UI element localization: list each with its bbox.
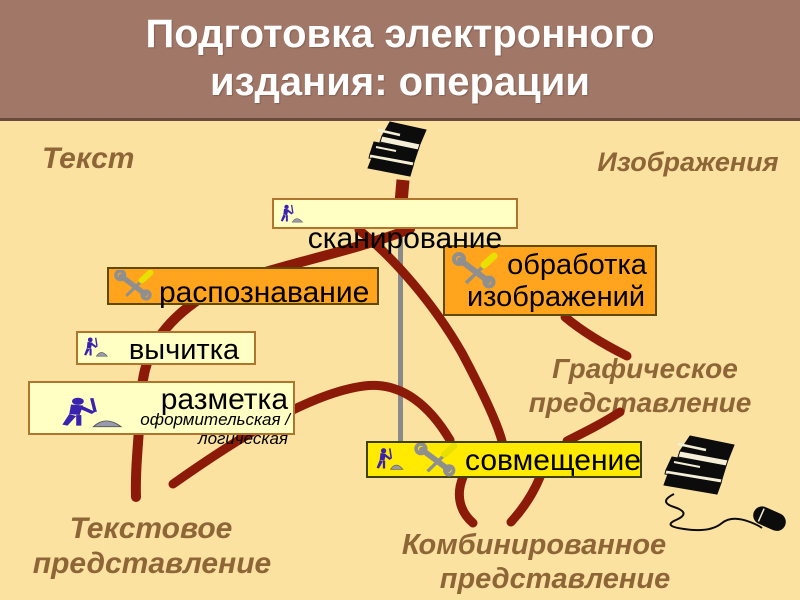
flow-curve-processing-to-graphic [565,317,627,356]
flow-curve-merge-down-right [511,477,540,522]
page-title-line2: издания: операции [0,59,800,105]
markup-sublabel-1: оформительская / [140,410,290,430]
crossed-tools-icon [410,443,462,477]
recognition-label: распознавание [159,276,369,310]
flow-curve-merge-down-left [459,477,473,523]
proofreading-label: вычитка [129,334,239,367]
worker-digging-icon [372,445,406,475]
page-title-line1: Подготовка электронного [0,11,800,57]
worker-digging-icon [277,201,305,228]
scanning-label: сканирование [308,222,502,256]
flow-curve-graphic-to-merge [567,412,620,441]
crossed-tools-icon [452,252,498,290]
markup-sublabel-2: логическая [198,429,288,449]
worker-digging-icon [80,334,110,362]
crossed-tools-icon [111,270,157,301]
books-stack-icon [356,120,440,178]
slide-header: Подготовка электронного издания: операци… [0,0,800,121]
worker-digging-icon [52,396,128,432]
image-processing-label-line1: обработка [507,249,647,282]
mouse-cable [666,494,762,530]
merge-label: совмещение [465,444,641,478]
computer-mouse [750,504,788,532]
books-with-mouse-icon [648,432,798,532]
slide: Подготовка электронного издания: операци… [0,0,800,600]
